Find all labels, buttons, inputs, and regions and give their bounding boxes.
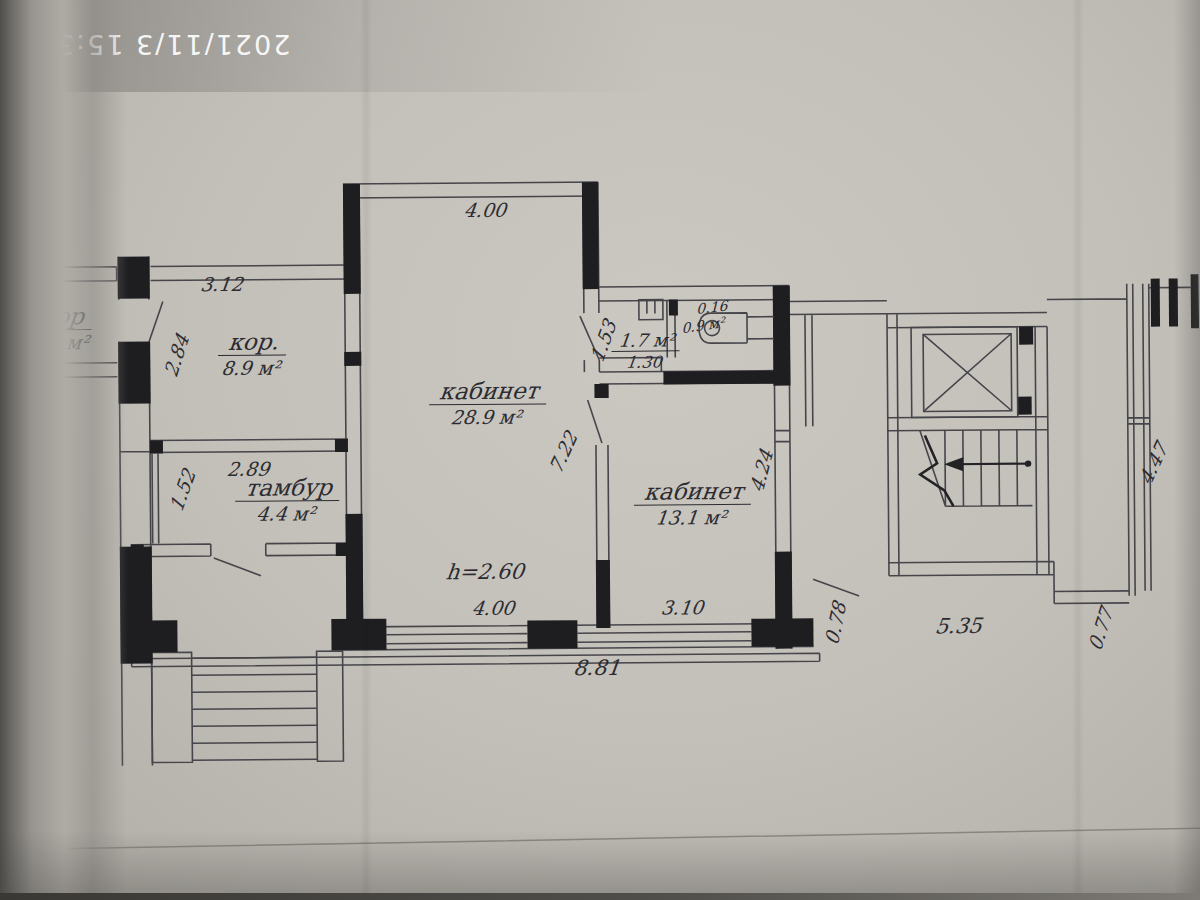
room-area: 8.9 м² [220, 357, 281, 379]
camera-timestamp: 2021/11/3 15:32 [36, 29, 291, 60]
room-name: тамбур [235, 476, 342, 502]
dim-stair-block-width: 5.35 [934, 614, 984, 638]
sink-icon [639, 300, 663, 320]
dim-corridor-width: 3.12 [199, 273, 244, 295]
room-area: 13.1 м² [654, 506, 727, 529]
direction-arrow-icon [920, 435, 1032, 507]
ceiling-height-note: h=2.60 [445, 560, 526, 585]
room-name: кор [30, 305, 94, 331]
dim-office-small-width: 3.10 [660, 596, 705, 618]
room-label-tambour: тамбур 4.4 м² [232, 476, 342, 525]
room-name: кабинет [429, 379, 549, 405]
dim-office-top-width: 4.00 [463, 199, 508, 221]
room-area: 4.4 м² [255, 503, 316, 525]
page-edge-line [3, 828, 1200, 862]
door-leaf-icon [149, 301, 163, 341]
room-label-corridor: кор. 8.9 м² [215, 330, 289, 379]
stairs-right-icon [920, 430, 1033, 507]
floor-plan-drawing: кор 5.1 м² 3.12 2.84 кор. 8.9 м² 1.52 2.… [0, 0, 1200, 900]
room-area: 5.1 м² [29, 331, 90, 353]
wc-area-label: 1.7 м² 1.30 [609, 331, 681, 372]
dim-wc-width: 1.30 [625, 353, 663, 372]
room-label-office-small: кабинет 13.1 м² [631, 480, 754, 529]
dim-office-bottom-width: 4.00 [471, 597, 516, 619]
wall-fills [117, 177, 1200, 663]
dim-building-width: 8.81 [572, 656, 622, 680]
stairs-left-icon [192, 657, 318, 760]
floor-plan-photo: кор 5.1 м² 3.12 2.84 кор. 8.9 м² 1.52 2.… [0, 0, 1200, 900]
door-leaf-icon [588, 400, 602, 443]
room-name: кабинет [634, 480, 754, 506]
room-name: кор. [218, 330, 289, 356]
door-leaf-icon [214, 558, 261, 576]
room-label-office-large: кабинет 28.9 м² [426, 379, 549, 428]
floor-plan-lines [0, 0, 1200, 900]
room-area: 28.9 м² [449, 406, 522, 429]
room-area: 1.7 м² [611, 331, 681, 352]
room-label-corridor-small: кор 5.1 м² [28, 305, 95, 354]
elevator-shaft-icon [911, 327, 1018, 418]
